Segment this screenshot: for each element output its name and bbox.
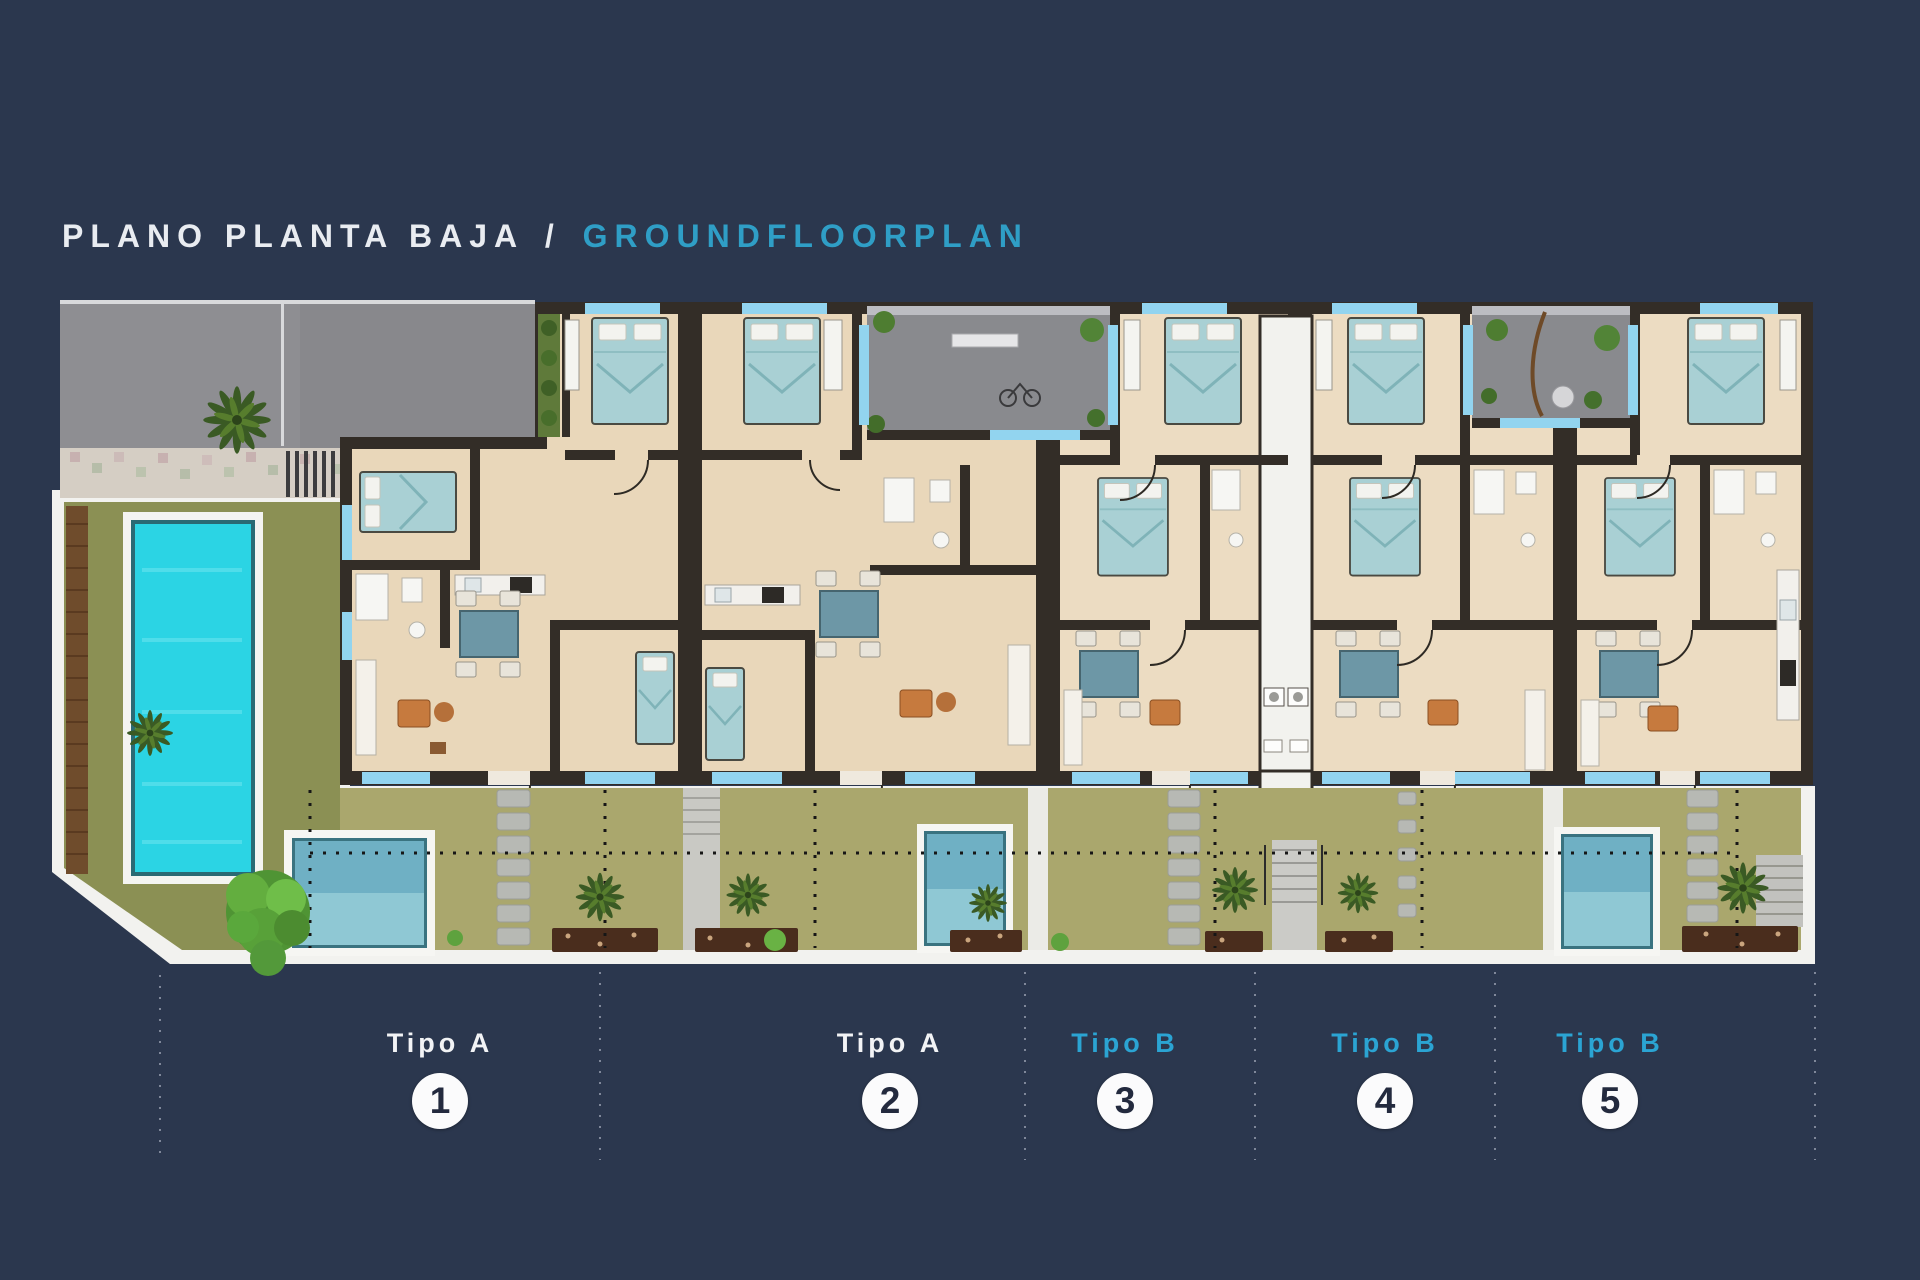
walkway-units-1-2: [683, 788, 720, 950]
unit-4-type-label: Tipo B: [1275, 1028, 1495, 1059]
unit-1-type-label: Tipo A: [330, 1028, 550, 1059]
unit-1-number-badge: 1: [412, 1073, 468, 1129]
unit-3-number-badge: 3: [1097, 1073, 1153, 1129]
central-stairs: [1265, 840, 1322, 950]
title-separator: /: [539, 218, 567, 254]
unit-5-type-label: Tipo B: [1500, 1028, 1720, 1059]
shrub: [447, 930, 463, 946]
wood-deck-strip: [66, 506, 88, 874]
walkway-units-2-3: [1028, 788, 1048, 950]
title-spanish: PLANO PLANTA BAJA: [62, 218, 523, 254]
unit-1-planter: [538, 314, 560, 437]
unit-2-number-badge: 2: [862, 1073, 918, 1129]
bench: [952, 334, 1018, 347]
bed-horizontal: [360, 472, 456, 532]
page: PLANO PLANTA BAJA / GROUNDFLOORPLAN Tipo…: [0, 0, 1920, 1280]
building: [340, 302, 1813, 835]
patio-table: [1552, 386, 1574, 408]
unit-label-2: Tipo A 2: [780, 1028, 1000, 1129]
shrub: [1051, 933, 1069, 951]
driveway: [60, 300, 535, 448]
unit-2-type-label: Tipo A: [780, 1028, 1000, 1059]
unit-label-3: Tipo B 3: [1015, 1028, 1235, 1129]
unit-label-4: Tipo B 4: [1275, 1028, 1495, 1129]
unit-label-5: Tipo B 5: [1500, 1028, 1720, 1129]
unit-label-1: Tipo A 1: [330, 1028, 550, 1129]
unit-4-number-badge: 4: [1357, 1073, 1413, 1129]
unit-3-type-label: Tipo B: [1015, 1028, 1235, 1059]
entry-courtyard-units-4-5: [1472, 306, 1630, 428]
page-title: PLANO PLANTA BAJA / GROUNDFLOORPLAN: [62, 218, 1029, 255]
armchair: [398, 700, 430, 727]
entry-courtyard-units-2-3: [867, 306, 1110, 440]
shrub: [764, 929, 786, 951]
title-english: GROUNDFLOORPLAN: [583, 218, 1029, 254]
plunge-pool-unit-5: [1554, 827, 1660, 956]
rear-garden: [284, 788, 1803, 956]
communal-pool: [123, 512, 263, 884]
unit-5-number-badge: 5: [1582, 1073, 1638, 1129]
shared-hallway-units-3-4: [1260, 316, 1312, 835]
side-stairs: [1756, 855, 1803, 927]
